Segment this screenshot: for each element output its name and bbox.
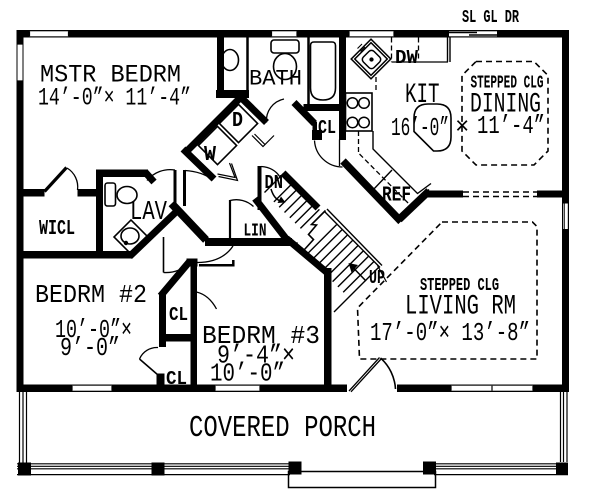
svg-text:REF: REF	[382, 185, 411, 208]
svg-text:9’-0”: 9’-0”	[60, 333, 120, 363]
svg-text:KIT: KIT	[405, 80, 440, 111]
svg-text:DW: DW	[395, 47, 419, 69]
svg-text:DN: DN	[265, 172, 284, 194]
svg-text:DINING: DINING	[470, 90, 541, 121]
svg-text:BATH: BATH	[249, 67, 302, 92]
svg-text:LIN: LIN	[244, 221, 267, 242]
svg-text:16’-0”: 16’-0”	[391, 113, 449, 143]
svg-text:×: ×	[455, 115, 469, 142]
svg-text:W: W	[204, 144, 216, 167]
svg-text:COVERED PORCH: COVERED PORCH	[189, 411, 376, 446]
svg-text:WICL: WICL	[39, 218, 75, 241]
svg-text:STEPPED CLG: STEPPED CLG	[420, 276, 499, 296]
svg-text:CL: CL	[318, 117, 336, 139]
svg-text:SL GL DR: SL GL DR	[462, 7, 520, 28]
svg-text:17’-0”× 13’-8”: 17’-0”× 13’-8”	[370, 318, 530, 348]
svg-text:14’-0”× 11’-4”: 14’-0”× 11’-4”	[38, 84, 191, 113]
svg-text:CL: CL	[169, 304, 188, 326]
svg-text:D: D	[232, 110, 243, 133]
svg-text:10’-0”: 10’-0”	[210, 359, 285, 389]
svg-text:UP: UP	[369, 267, 385, 289]
svg-text:BEDRM #2: BEDRM #2	[35, 280, 147, 310]
svg-text:CL: CL	[166, 368, 187, 390]
svg-text:LAV: LAV	[130, 198, 168, 228]
